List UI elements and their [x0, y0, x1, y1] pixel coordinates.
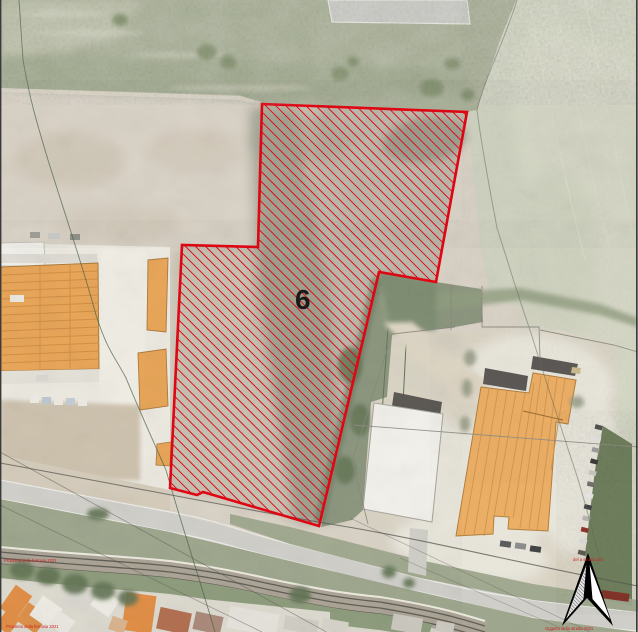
- svg-text:Oggetto della strada 2021: Oggetto della strada 2021: [545, 626, 594, 631]
- svg-text:Proprieta della ferrovia 2021: Proprieta della ferrovia 2021: [6, 624, 59, 629]
- svg-text:del a strada 223: del a strada 223: [573, 557, 604, 562]
- svg-text:Proprieta della ferrovia 2021: Proprieta della ferrovia 2021: [4, 558, 57, 563]
